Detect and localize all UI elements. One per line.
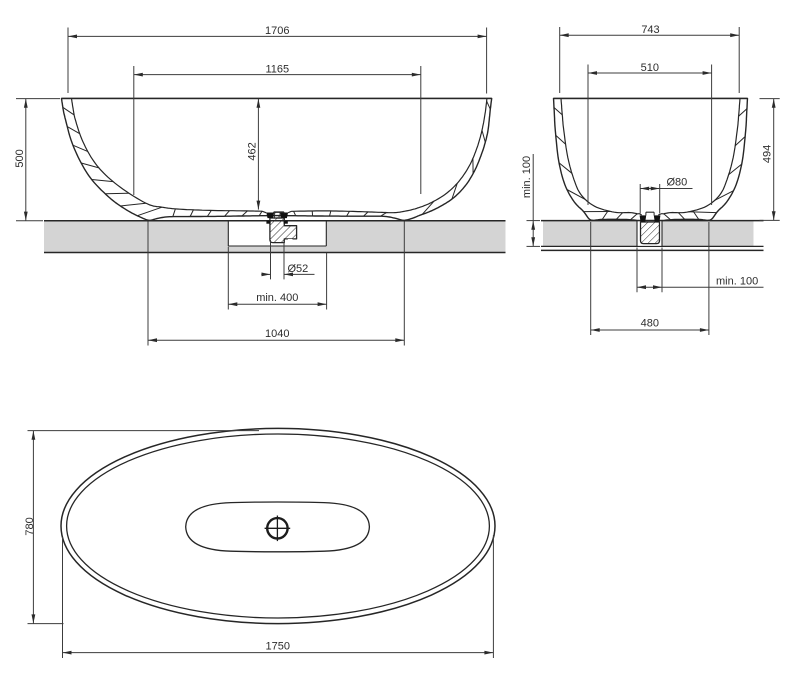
svg-text:743: 743 [641, 24, 659, 36]
svg-text:min. 400: min. 400 [256, 292, 298, 304]
svg-text:Ø52: Ø52 [288, 263, 309, 275]
svg-text:1040: 1040 [265, 328, 289, 340]
svg-text:min. 100: min. 100 [716, 275, 758, 287]
svg-text:480: 480 [641, 318, 659, 330]
svg-text:min. 100: min. 100 [521, 156, 533, 198]
svg-text:1706: 1706 [265, 25, 289, 37]
svg-text:780: 780 [24, 517, 36, 535]
svg-text:494: 494 [761, 145, 773, 163]
svg-text:462: 462 [247, 142, 259, 160]
svg-text:Ø80: Ø80 [667, 177, 688, 189]
svg-text:1750: 1750 [266, 640, 290, 652]
svg-text:1165: 1165 [265, 63, 289, 75]
svg-text:510: 510 [641, 62, 659, 74]
svg-text:500: 500 [14, 149, 26, 167]
